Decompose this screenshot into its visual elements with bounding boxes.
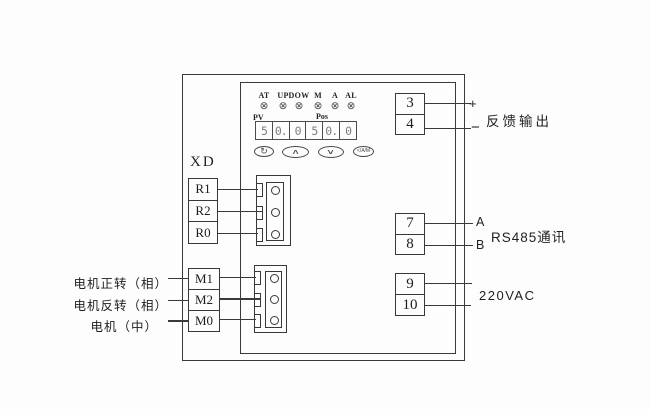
terminal-r1: R1 <box>189 179 217 201</box>
indicator-al: AL ⊗ <box>345 92 357 112</box>
feedback-output-label: 反馈输出 <box>486 110 552 130</box>
terminal-3: 3 <box>396 94 424 115</box>
auto-manual-key-button: </A/M <box>353 146 374 157</box>
connector-slot <box>254 293 261 307</box>
indicator-dow: DOW ⊗ <box>289 92 310 112</box>
xd-label: XD <box>190 154 216 171</box>
motor-forward-label: 电机正转（相） <box>73 273 168 292</box>
wire-m2 <box>220 298 261 300</box>
terminal-m0: M0 <box>189 311 219 331</box>
lcd-digit: 5 <box>306 122 323 139</box>
led-icon: ⊗ <box>279 101 288 112</box>
connector-slot <box>256 183 263 197</box>
terminal-8: 8 <box>396 235 424 255</box>
cycle-key-button: ↻ <box>254 146 274 157</box>
led-icon: ⊗ <box>260 101 269 112</box>
terminal-m2: M2 <box>189 290 219 311</box>
connector-slot <box>254 314 261 328</box>
cycle-arrow-icon: ↻ <box>260 147 268 156</box>
rs485-a-label: A <box>476 215 484 229</box>
indicator-m-label: M <box>314 92 322 100</box>
feedback-terminal-block: 3 4 <box>395 93 425 135</box>
screw-hole-icon <box>270 274 279 283</box>
lcd-display: 5 0. 0 5 0. 0 <box>255 121 357 140</box>
indicator-at-label: AT <box>258 92 269 100</box>
terminal-7: 7 <box>396 214 424 235</box>
power-terminal-block: 9 10 <box>395 273 425 316</box>
lcd-digit: 5 <box>256 122 273 139</box>
indicator-a: A ⊗ <box>331 92 340 112</box>
pos-label: Pos <box>316 112 328 121</box>
screw-hole-icon <box>270 295 279 304</box>
rs485-b-label: B <box>476 238 484 252</box>
indicator-a-label: A <box>332 92 338 100</box>
up-arrow-icon: ∧ <box>291 149 300 156</box>
wire-terminal-8 <box>425 245 473 247</box>
terminal-r2: R2 <box>189 201 217 223</box>
rs485-label: RS485通讯 <box>491 226 566 246</box>
plus-sign: + <box>469 96 477 111</box>
lcd-digit: 0 <box>340 122 356 139</box>
lcd-digit: 0 <box>290 122 307 139</box>
terminal-4: 4 <box>396 115 424 135</box>
down-key-button: ∨ <box>318 146 344 158</box>
wire-terminal-9 <box>425 283 472 285</box>
screw-hole-icon <box>271 208 280 217</box>
wiring-diagram: AT ⊗ UP ⊗ DOW ⊗ M ⊗ A ⊗ AL ⊗ PV Pos 5 0.… <box>0 0 650 409</box>
screw-hole-icon <box>271 230 280 239</box>
wire-label-m1 <box>168 278 188 280</box>
motor-terminal-block: M1 M2 M0 <box>188 268 220 332</box>
wire-terminal-10 <box>425 305 471 307</box>
down-arrow-icon: ∨ <box>327 149 336 156</box>
connector-slot <box>254 271 261 285</box>
connector-slot <box>256 206 263 220</box>
indicator-up: UP ⊗ <box>277 92 288 112</box>
wire-r0 <box>218 233 258 235</box>
wire-label-m2 <box>168 300 188 302</box>
wire-terminal-7 <box>425 223 473 225</box>
wire-terminal-3 <box>425 103 471 105</box>
terminal-10: 10 <box>396 295 424 315</box>
motor-reverse-label: 电机反转（相） <box>73 295 168 314</box>
wire-m1 <box>220 277 256 279</box>
minus-sign: − <box>471 119 480 136</box>
rs485-terminal-block: 7 8 <box>395 213 425 255</box>
wire-r2 <box>218 211 263 213</box>
indicator-at: AT ⊗ <box>258 92 269 112</box>
led-icon: ⊗ <box>331 101 340 112</box>
power-label: 220VAC <box>479 288 535 303</box>
motor-neutral-label: 电机（中） <box>90 316 158 335</box>
indicator-dow-label: DOW <box>289 92 310 100</box>
terminal-m1: M1 <box>189 269 219 290</box>
connector-slot <box>256 228 263 242</box>
wire-terminal-4 <box>425 128 471 130</box>
terminal-9: 9 <box>396 274 424 295</box>
lcd-digit: 0. <box>323 122 340 139</box>
up-key-button: ∧ <box>282 146 309 158</box>
screw-hole-icon <box>271 186 280 195</box>
indicator-al-label: AL <box>345 92 357 100</box>
led-icon: ⊗ <box>314 101 323 112</box>
indicator-m: M ⊗ <box>314 92 323 112</box>
screw-hole-icon <box>270 316 279 325</box>
led-icon: ⊗ <box>347 101 356 112</box>
auto-manual-icon: </A/M <box>357 149 370 154</box>
led-icon: ⊗ <box>295 101 304 112</box>
terminal-r0: R0 <box>189 222 217 243</box>
lcd-digit: 0. <box>273 122 290 139</box>
wire-m0 <box>220 319 256 321</box>
relay-terminal-block: R1 R2 R0 <box>188 178 218 244</box>
indicator-up-label: UP <box>277 92 288 100</box>
wire-label-m0 <box>168 320 188 322</box>
wire-r1 <box>218 189 258 191</box>
